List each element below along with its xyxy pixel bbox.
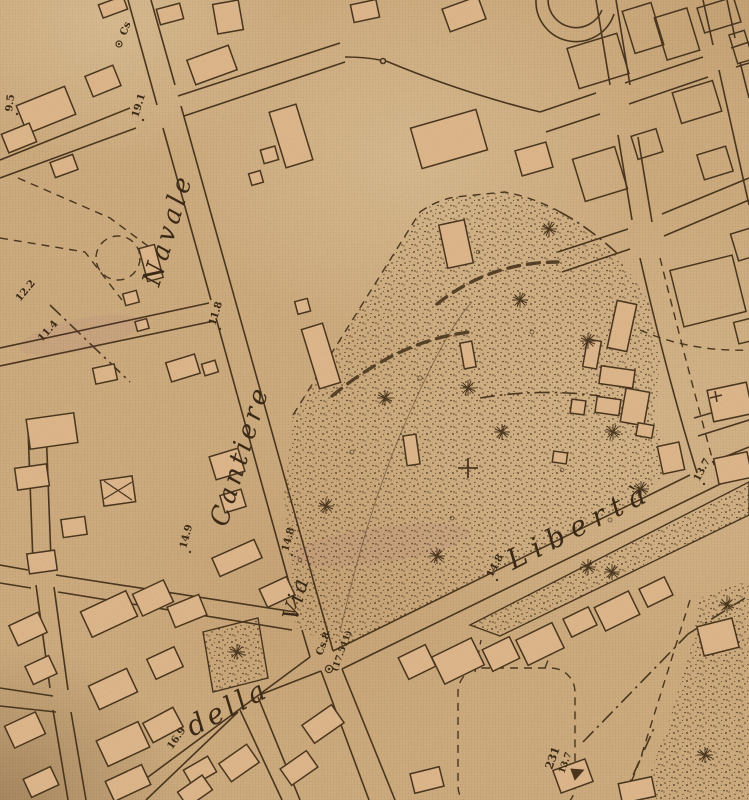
spot-height-9-5: 9.5 bbox=[4, 94, 17, 113]
spot-height-12-2: 12.2 bbox=[14, 278, 38, 304]
spot-height-19-1: 19.1 bbox=[130, 92, 148, 119]
map-svg: Cs 9.5 19.1 12.2 11.4 11.8 14.9 14.8 16.… bbox=[0, 0, 749, 800]
spot-height-14-9: 14.9 bbox=[178, 523, 195, 549]
spot-height-11-8: 11.8 bbox=[207, 300, 225, 327]
flag-building bbox=[553, 759, 593, 793]
benchmark-cs-top-label: Cs bbox=[118, 20, 133, 37]
map-viewport: Cs 9.5 19.1 12.2 11.4 11.8 14.9 14.8 16.… bbox=[0, 0, 749, 800]
benchmark-cs-top: Cs bbox=[116, 20, 134, 47]
well-circle bbox=[381, 59, 386, 64]
bottom-right-stipple bbox=[640, 580, 749, 800]
vegetation-layer bbox=[203, 192, 749, 800]
street-label-navale: Navale bbox=[137, 170, 200, 291]
spot-height-13-7-a: 13.7 bbox=[692, 457, 713, 484]
crossed-building bbox=[100, 476, 135, 506]
